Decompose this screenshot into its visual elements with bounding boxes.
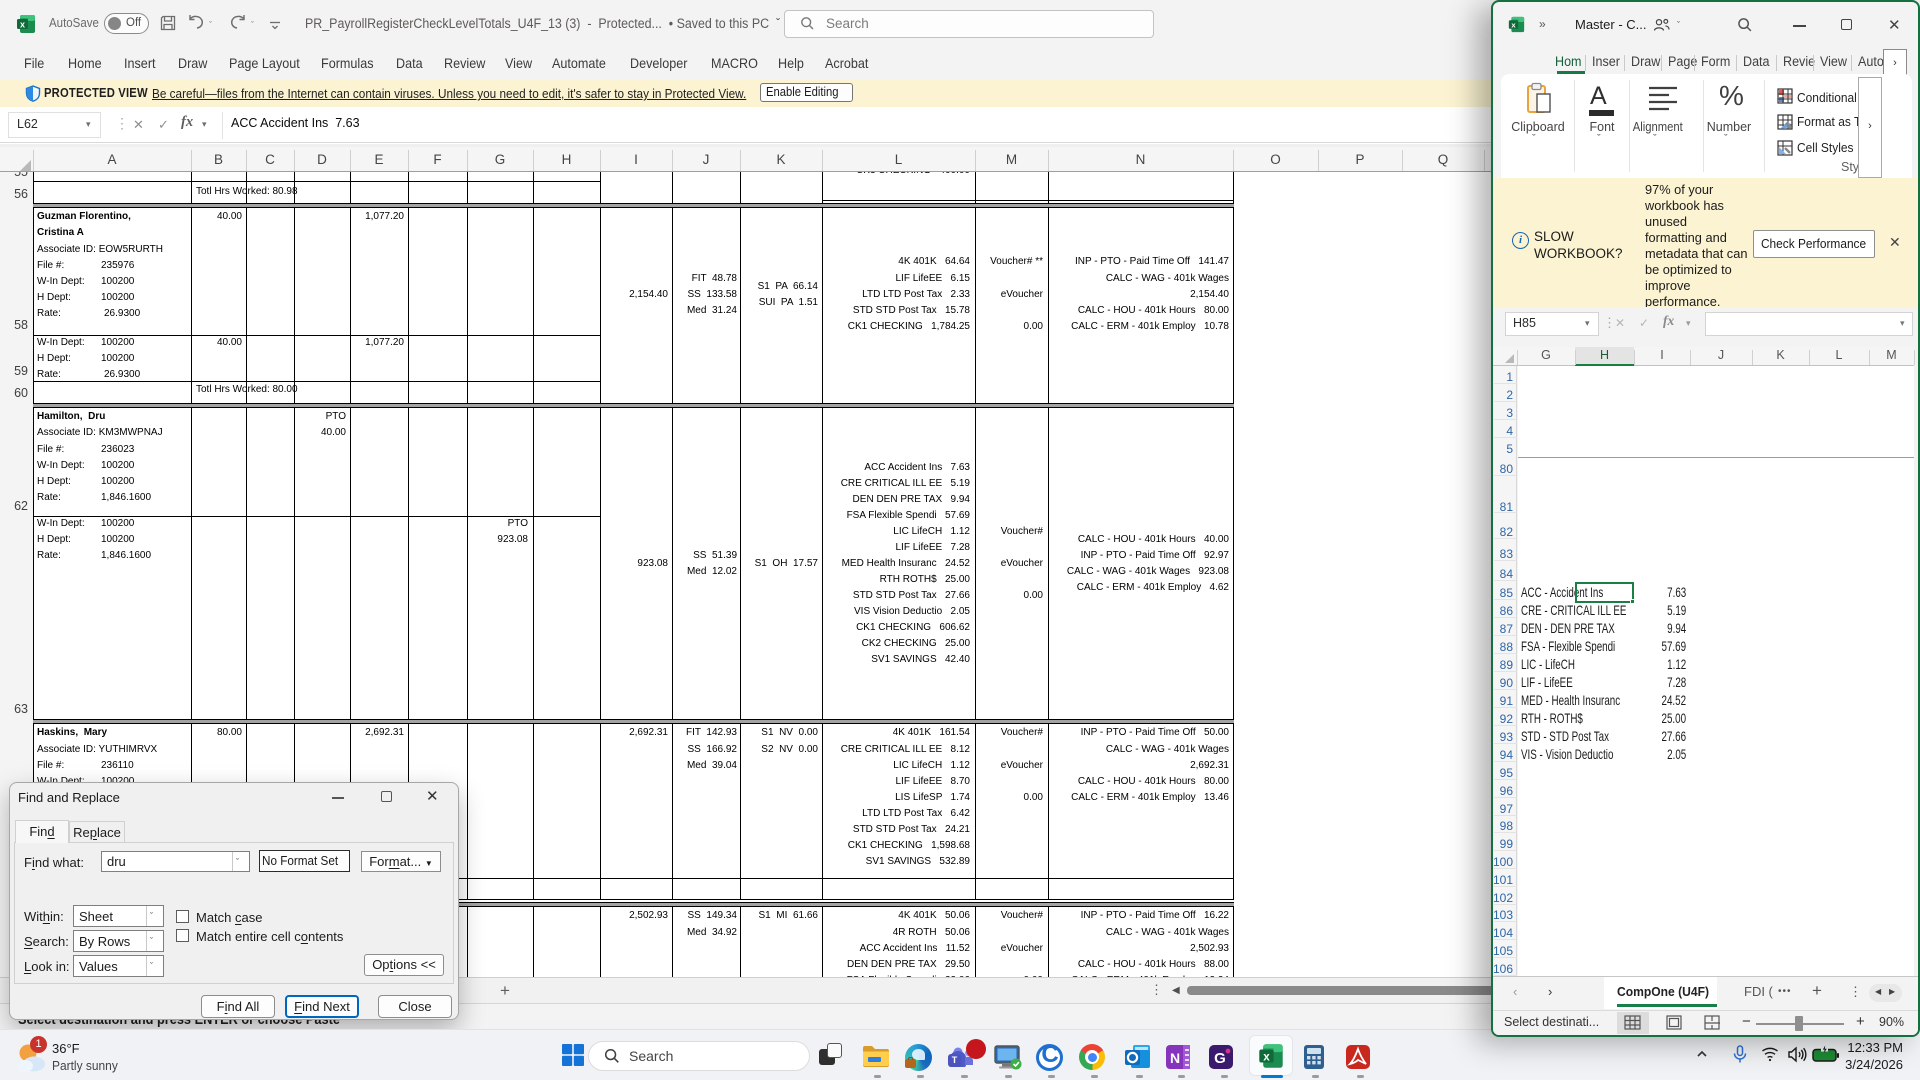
svg-text:x: x [1263, 1051, 1270, 1064]
svg-text:G: G [1214, 1050, 1226, 1067]
svg-text:N: N [1170, 1050, 1180, 1066]
svg-text:x: x [20, 20, 25, 30]
